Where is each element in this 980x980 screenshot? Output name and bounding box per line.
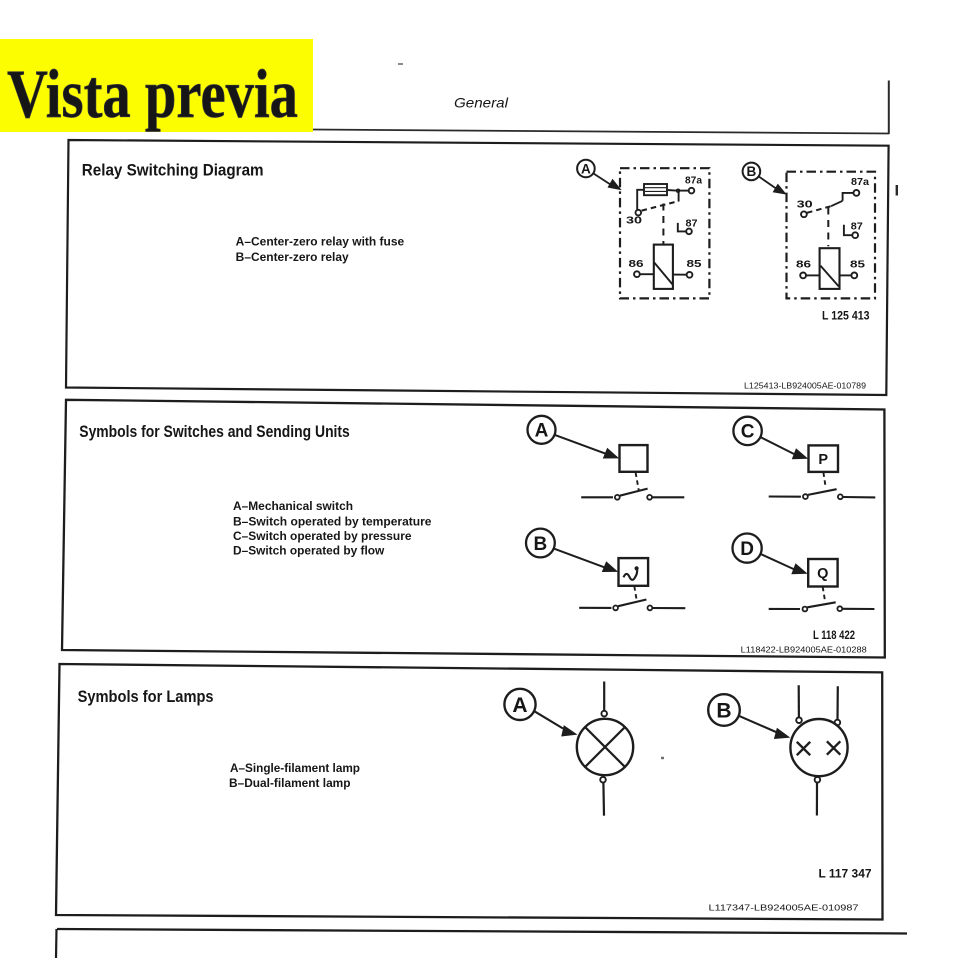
svg-text:P: P — [818, 452, 828, 468]
svg-text:D–Switch operated by flow: D–Switch operated by flow — [233, 545, 384, 557]
svg-text:B: B — [716, 699, 731, 722]
svg-text:L 118 422: L 118 422 — [813, 630, 855, 642]
svg-text:A: A — [512, 694, 527, 717]
svg-text:B–Dual-filament lamp: B–Dual-filament lamp — [229, 778, 351, 790]
svg-text:L117347-LB924005AE-010987: L117347-LB924005AE-010987 — [709, 904, 860, 913]
svg-text:Symbols for Switches and Sendi: Symbols for Switches and Sending Units — [79, 422, 350, 441]
svg-text:L125413-LB924005AE-010789: L125413-LB924005AE-010789 — [744, 382, 867, 391]
svg-text:87a: 87a — [685, 175, 702, 187]
svg-text:Relay Switching Diagram: Relay Switching Diagram — [82, 160, 264, 179]
svg-text:Symbols for Lamps: Symbols for Lamps — [78, 687, 214, 706]
svg-text:86: 86 — [629, 258, 644, 270]
svg-text:87: 87 — [686, 217, 698, 229]
svg-text:85: 85 — [850, 259, 865, 271]
svg-text:30: 30 — [626, 215, 642, 227]
svg-text:B–Center-zero relay: B–Center-zero relay — [236, 252, 350, 264]
svg-text:C–Switch operated by pressure: C–Switch operated by pressure — [233, 531, 412, 543]
svg-text:Q: Q — [817, 566, 828, 582]
svg-text:L118422-LB924005AE-010288: L118422-LB924005AE-010288 — [741, 646, 868, 655]
svg-text:L 125 413: L 125 413 — [822, 311, 870, 323]
svg-text:A: A — [535, 421, 549, 442]
svg-text:B–Switch operated by temperatu: B–Switch operated by temperature — [233, 517, 432, 529]
svg-text:30: 30 — [797, 199, 813, 211]
svg-text:A–Mechanical switch: A–Mechanical switch — [233, 501, 353, 513]
svg-text:Vista previa: Vista previa — [7, 56, 298, 132]
svg-text:87a: 87a — [851, 176, 869, 188]
svg-text:D: D — [740, 539, 754, 560]
svg-text:C: C — [741, 422, 755, 443]
svg-text:B: B — [534, 534, 548, 555]
svg-text:B: B — [747, 164, 757, 179]
svg-text:A–Single-filament lamp: A–Single-filament lamp — [230, 763, 360, 775]
svg-text:86: 86 — [796, 259, 811, 271]
svg-text:A: A — [581, 161, 591, 176]
svg-text:87: 87 — [851, 221, 863, 233]
svg-text:General: General — [454, 95, 509, 111]
svg-text:A–Center-zero relay with fuse: A–Center-zero relay with fuse — [236, 237, 404, 249]
svg-text:85: 85 — [687, 258, 702, 270]
svg-text:L 117 347: L 117 347 — [819, 869, 872, 881]
